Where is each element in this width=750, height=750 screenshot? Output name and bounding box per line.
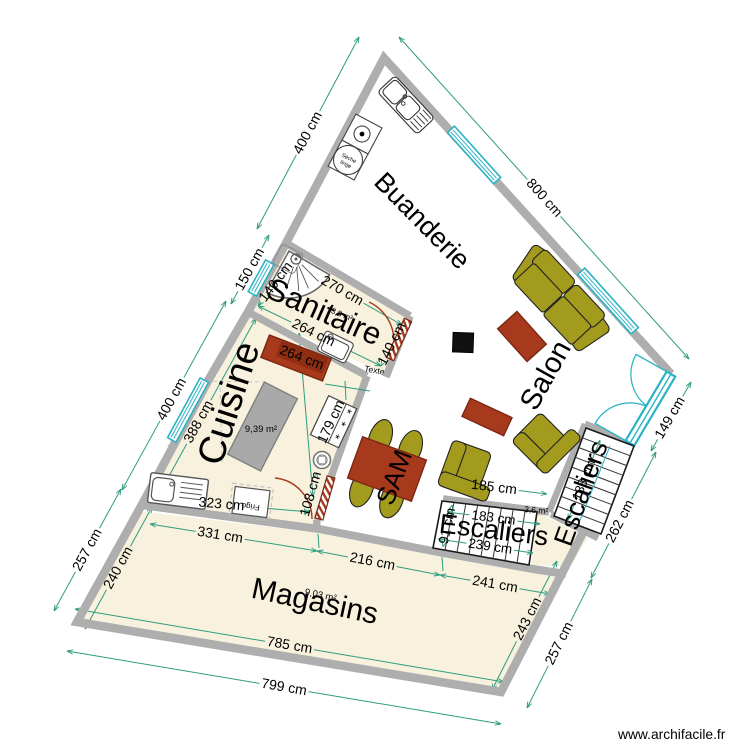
svg-text:www.archifacile.fr: www.archifacile.fr: [617, 727, 726, 742]
svg-text:3,6 m²: 3,6 m²: [524, 504, 549, 516]
svg-text:9,39 m²: 9,39 m²: [245, 424, 277, 435]
